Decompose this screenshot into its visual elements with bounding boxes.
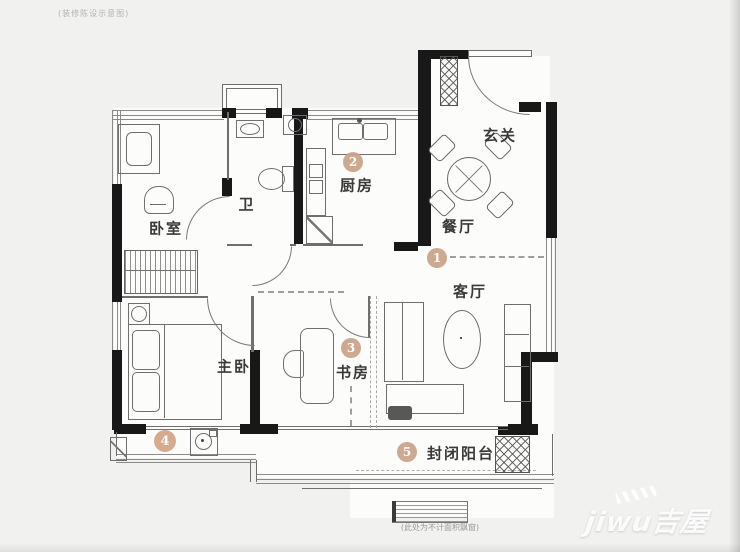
study-desk: [300, 328, 334, 404]
marker-2: 2: [343, 152, 363, 172]
marker-1: 1: [427, 248, 447, 268]
label-kitchen: 厨房: [340, 175, 374, 196]
bath-sink-bowl: [240, 123, 260, 135]
partition-bedroom-right: [227, 112, 229, 180]
note-top: (装修陈设示意图): [58, 8, 129, 19]
window-left-master: [112, 300, 121, 352]
floorplan-canvas: 1 2 3 4 5 玄关 餐厅 客厅 厨房 卫 卧室 主卧 书房 封闭阳台 (装…: [0, 0, 740, 552]
plant: [131, 306, 147, 322]
marker-3: 3: [341, 338, 361, 358]
wall-segment: [394, 242, 418, 251]
wardrobe-bedroom: [124, 250, 198, 294]
label-dining: 餐厅: [442, 216, 476, 237]
wall-left-upper: [112, 184, 122, 302]
kitchen-sink-bowl: [363, 123, 388, 140]
wall-segment: [508, 424, 538, 435]
edge-line: [250, 460, 251, 482]
label-foyer: 玄关: [483, 125, 517, 146]
study-chair: [283, 350, 304, 378]
water-heater-dial: [288, 118, 302, 132]
pillow: [132, 330, 160, 370]
label-living: 客厅: [453, 281, 487, 302]
sofa-cushion-line: [504, 334, 529, 335]
dashed-line-study-top: [258, 291, 344, 295]
balcony-cabinet: [110, 437, 127, 461]
stove-burner: [309, 164, 323, 178]
partition-hall-top: [227, 244, 252, 246]
marker-4: 4: [154, 430, 176, 452]
wall-left-lower: [112, 350, 122, 430]
wall-segment: [266, 108, 282, 118]
window-bedroom-top: [112, 110, 224, 120]
bed-line: [164, 324, 165, 418]
grille-bottom-bay: [392, 501, 468, 523]
page-edge-right: [729, 0, 740, 552]
dashed-divider-study: [370, 296, 373, 428]
tall-cabinet: [384, 302, 424, 382]
label-study: 书房: [336, 362, 370, 383]
edge-line: [256, 460, 257, 482]
coffee-table-dot: [460, 337, 462, 339]
partition-kitchen-bottom: [303, 244, 363, 246]
wall-right-upper: [546, 102, 557, 238]
wall-segment: [222, 108, 236, 118]
slider-service-balcony: [146, 426, 240, 427]
wall-segment: [222, 178, 232, 196]
window-right-living: [546, 238, 556, 352]
column-hatch-entry: [440, 56, 458, 106]
wall-segment: [114, 424, 146, 434]
bedroom-chair: [126, 132, 152, 166]
sofa: [504, 304, 531, 402]
ac-unit-balcony: [495, 436, 530, 473]
watermark: jiwu吉屋: [583, 500, 711, 539]
label-master: 主卧: [217, 356, 251, 377]
grille-edge: [392, 501, 396, 522]
window-balcony-bottom: [256, 474, 554, 484]
wardrobe-divider: [124, 270, 196, 271]
dashed-line-dining: [450, 256, 544, 260]
slider-balcony: [278, 429, 508, 430]
marker-5: 5: [397, 442, 417, 462]
coffee-table: [443, 310, 481, 369]
partition-bedroom-bottom: [122, 296, 208, 298]
slider-balcony: [278, 426, 508, 427]
armchair: [144, 186, 174, 214]
bench: [388, 406, 412, 420]
stove-burner: [309, 180, 323, 194]
edge-line: [302, 488, 542, 489]
sofa-cushion-line: [504, 366, 529, 367]
label-bath: 卫: [238, 194, 255, 215]
armchair-line: [150, 204, 166, 205]
washer-panel: [209, 430, 217, 437]
dining-table: [447, 157, 491, 201]
washer-dot: [201, 439, 204, 442]
label-balcony: 封闭阳台: [427, 443, 495, 464]
bay-window-top-inner: [226, 88, 278, 110]
kitchen-faucet: [357, 118, 362, 123]
label-bedroom: 卧室: [149, 218, 183, 239]
kitchen-sink-bowl: [338, 123, 363, 140]
pillow: [132, 372, 160, 412]
dashed-divider-study: [376, 296, 379, 428]
toilet-bowl: [258, 168, 285, 190]
dashed-line-study: [350, 386, 354, 426]
fridge: [306, 216, 333, 244]
note-bottom: (此处为不计面积飘窗): [401, 522, 479, 533]
tall-cabinet-line: [402, 302, 403, 380]
window-service-balcony-bottom: [116, 454, 256, 463]
wall-master-study: [250, 350, 260, 430]
edge-line: [552, 434, 553, 476]
page-edge-bottom: [0, 543, 740, 552]
